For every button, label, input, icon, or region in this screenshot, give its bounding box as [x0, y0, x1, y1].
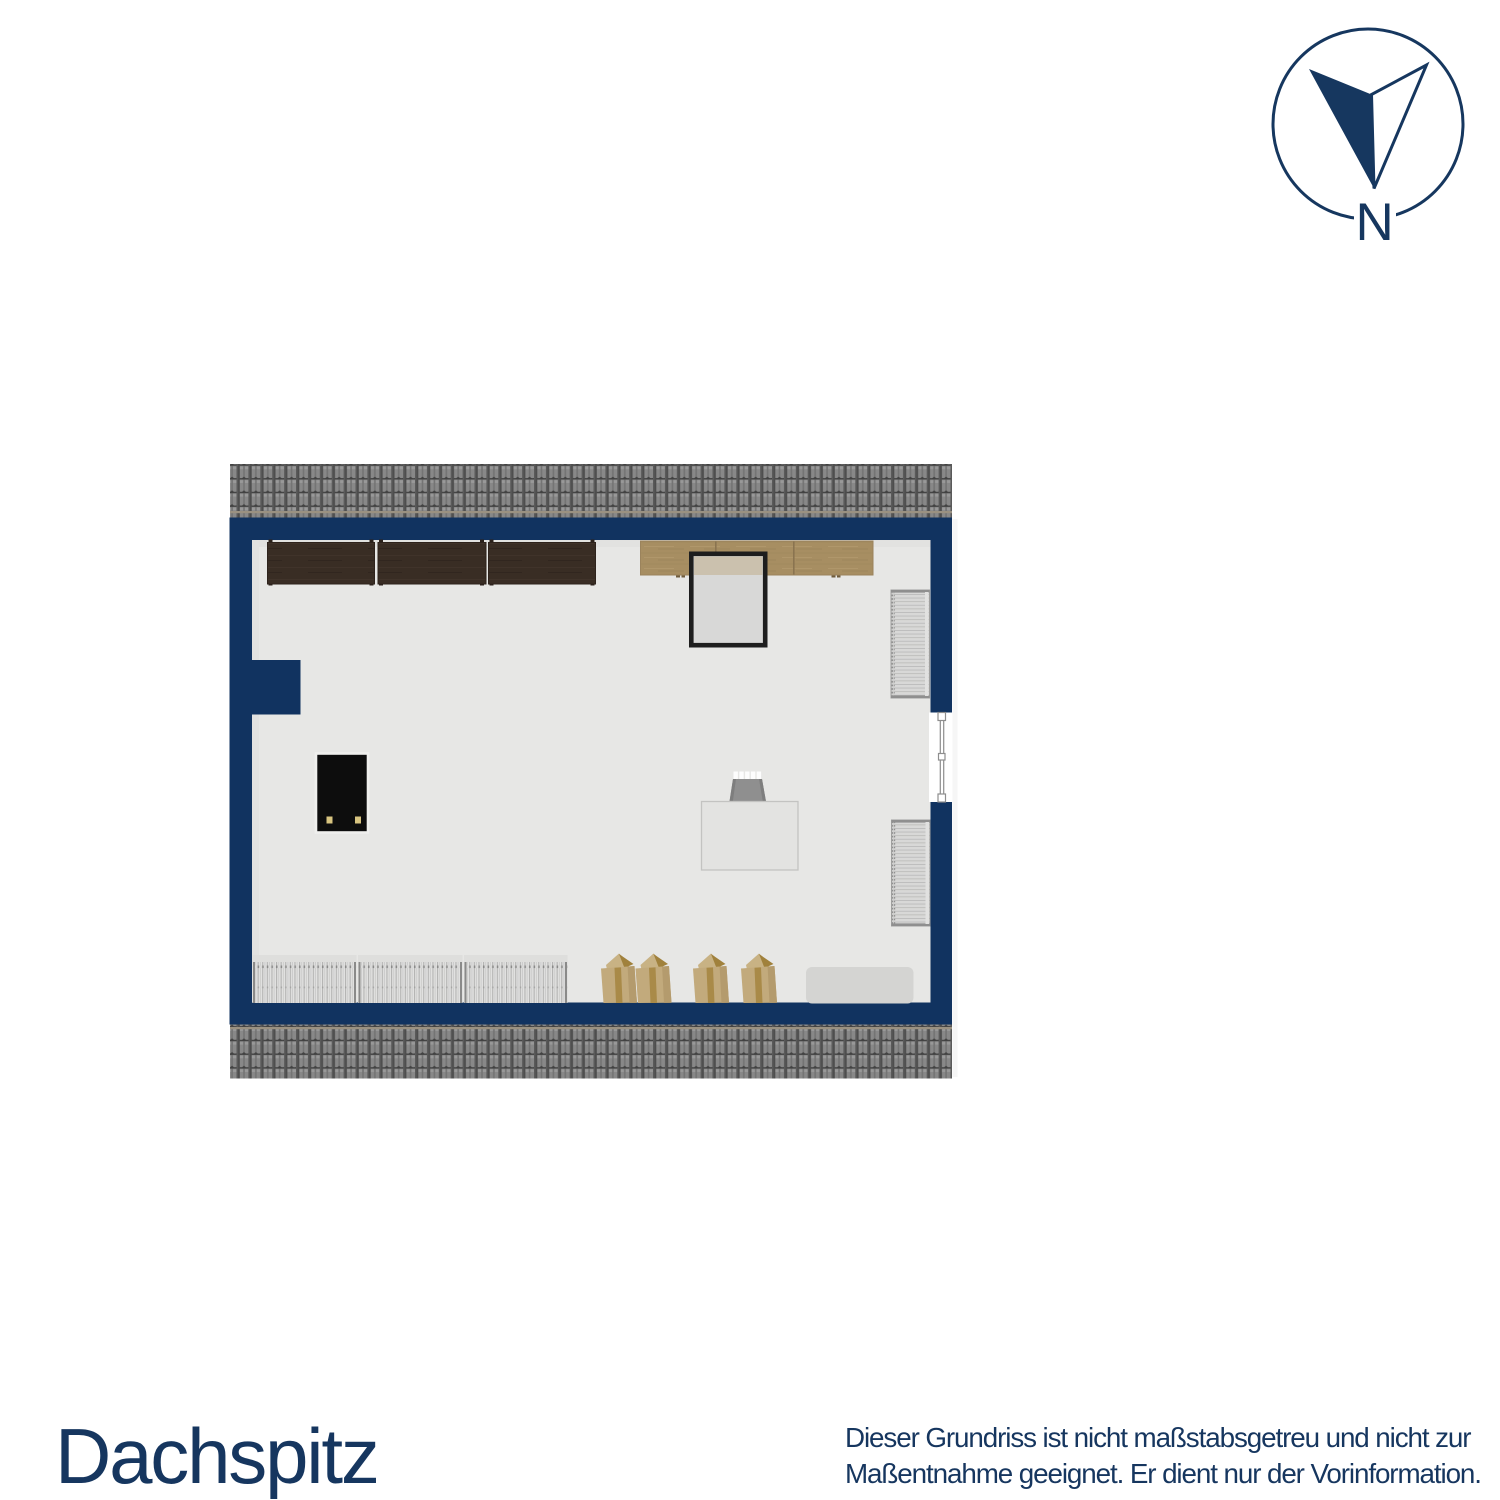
svg-text:N: N	[1356, 193, 1394, 252]
